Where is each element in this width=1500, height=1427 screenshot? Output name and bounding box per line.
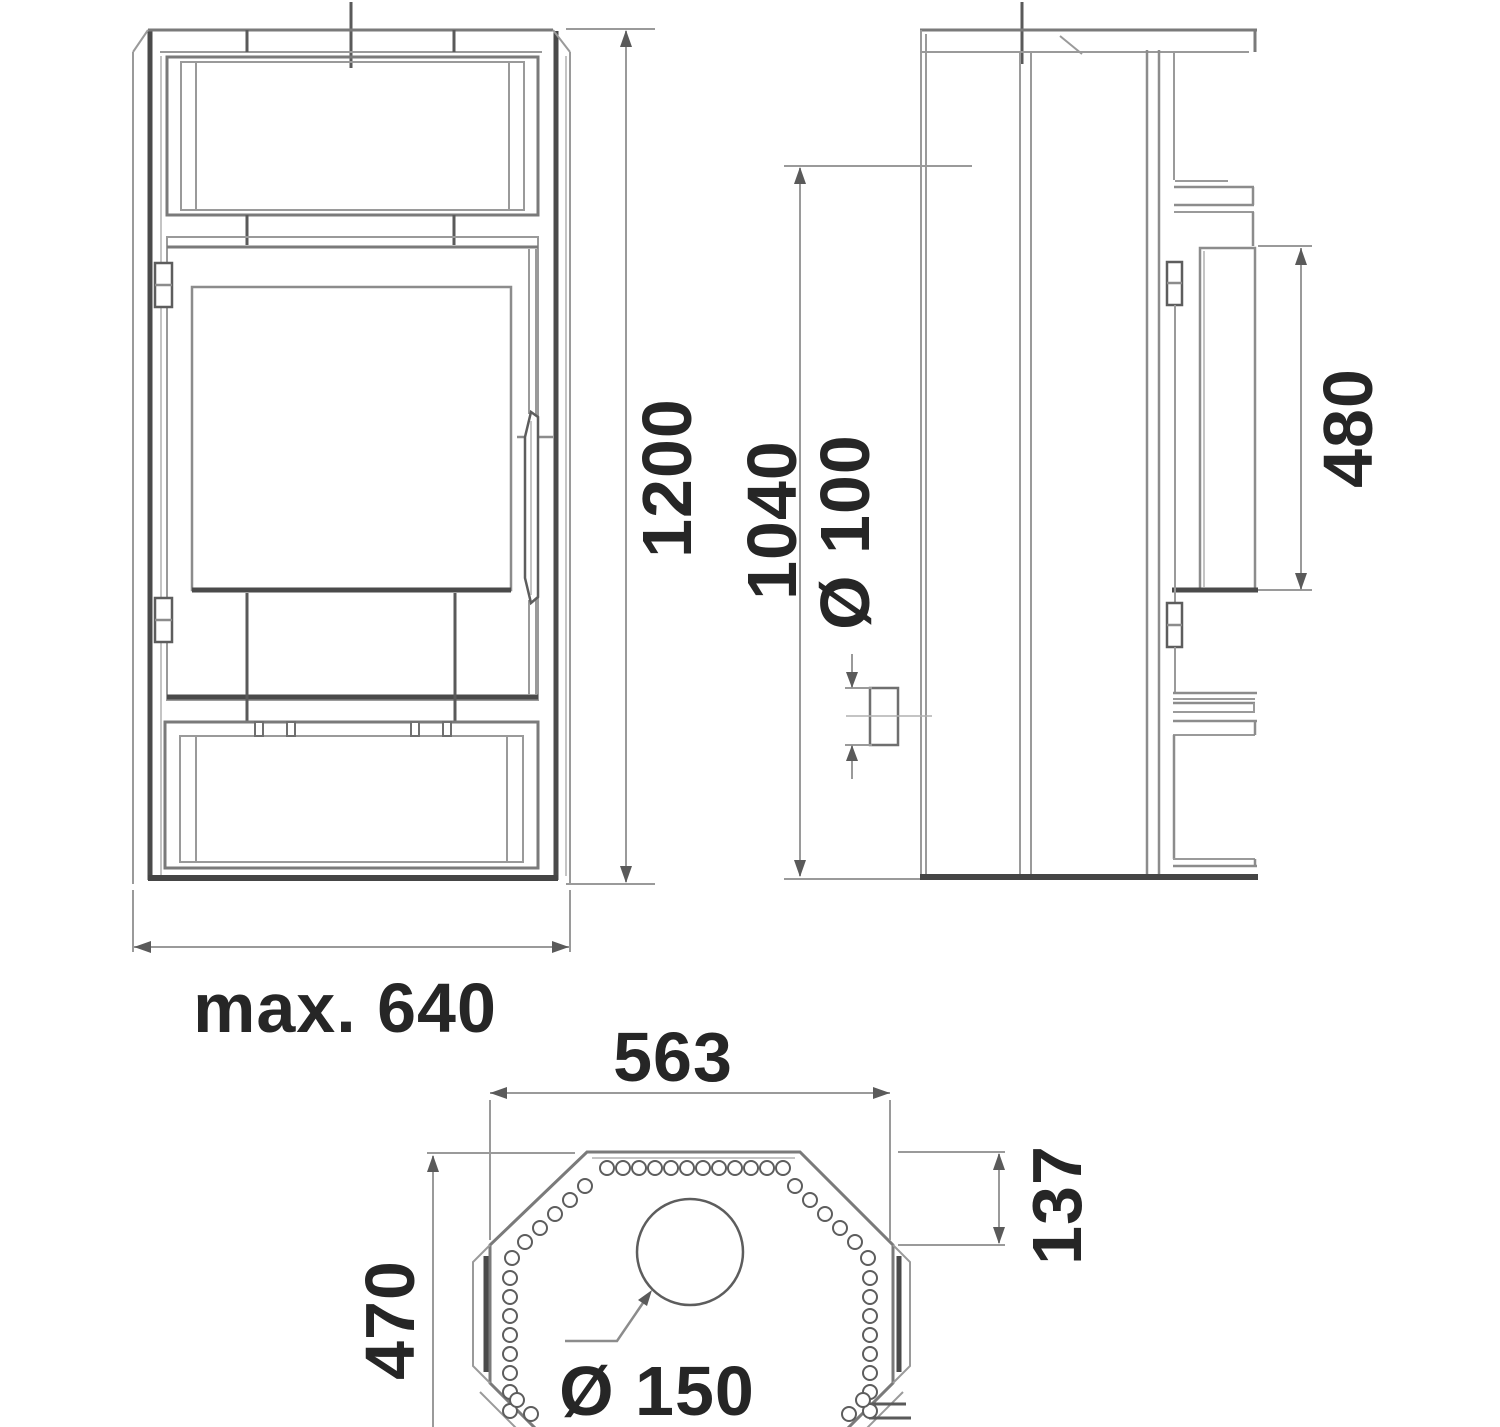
dim-air-inlet-diameter: Ø 100 — [806, 434, 884, 630]
dim-front-height: 1200 — [628, 398, 706, 558]
technical-drawing-page: 1200 max. 640 — [0, 0, 1500, 1427]
side-view — [846, 2, 1258, 878]
front-view — [133, 2, 570, 884]
stove-drawing: 1200 max. 640 — [0, 0, 1500, 1427]
door-hinge-bottom — [155, 598, 172, 642]
dim-top-width: 563 — [613, 1018, 733, 1096]
flue-leader-line — [565, 1300, 645, 1341]
dim-top-depth: 470 — [351, 1260, 429, 1380]
side-hinges — [1167, 262, 1182, 692]
door-hinge-top — [155, 263, 172, 307]
front-dimensions: 1200 max. 640 — [133, 29, 706, 1047]
dim-rear-flue-height: 1040 — [733, 440, 811, 600]
front-top-panel — [167, 57, 538, 215]
front-door-glass — [192, 287, 511, 590]
dim-flue-diameter: Ø 150 — [559, 1352, 755, 1427]
front-bottom-panel — [165, 722, 538, 868]
dim-front-width: max. 640 — [193, 969, 497, 1047]
flue-outlet-circle — [637, 1199, 743, 1305]
side-glass-panel — [1200, 248, 1255, 590]
dim-glass-height: 480 — [1309, 368, 1387, 488]
front-body — [167, 237, 538, 700]
door-handle — [517, 412, 553, 603]
side-dimensions: 1040 Ø 100 480 — [733, 166, 1387, 879]
air-inlet-stub — [846, 688, 932, 745]
dim-top-corner-depth: 137 — [1018, 1145, 1096, 1265]
